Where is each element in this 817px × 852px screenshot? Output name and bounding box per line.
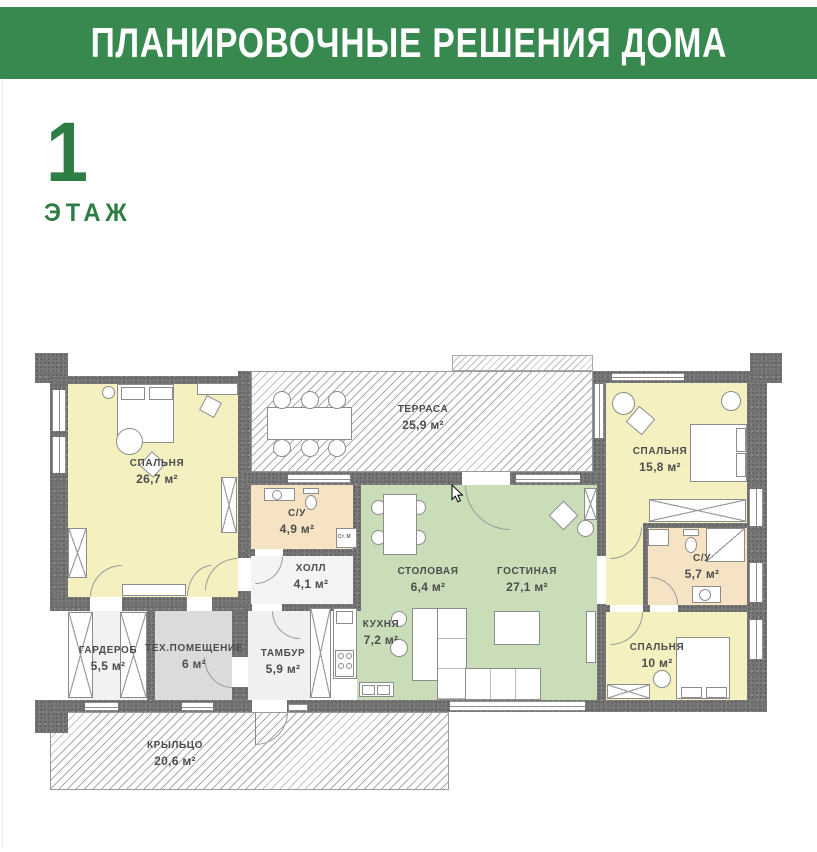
radiator-icon — [584, 488, 597, 520]
sofa-icon — [437, 608, 467, 700]
wall-bedroom1-bottom — [50, 597, 251, 611]
kitchen-island-icon — [412, 608, 438, 681]
closet-icon — [607, 684, 650, 699]
door-gap — [650, 605, 678, 612]
stool-icon — [653, 670, 671, 688]
washing-machine-icon — [648, 529, 669, 546]
sink-bowl-icon — [272, 490, 282, 500]
pillow-icon — [121, 387, 145, 400]
window — [516, 474, 580, 483]
sink-bowl-icon — [362, 685, 375, 695]
door-gap — [252, 604, 282, 611]
door-gap — [597, 556, 606, 604]
room-label-hall: ХОЛЛ 4,1 м² — [294, 563, 329, 591]
chair-icon — [301, 391, 319, 409]
burner-icon — [346, 653, 352, 659]
room-label-wardrobe: ГАРДЕРОБ 5,5 м² — [79, 645, 137, 673]
page-title: ПЛАНИРОВОЧНЫЕ РЕШЕНИЯ ДОМА — [90, 19, 727, 67]
closet-icon — [649, 499, 746, 522]
radiator-icon — [68, 528, 87, 578]
wall-right — [747, 383, 767, 712]
floor-plan-page: ПЛАНИРОВОЧНЫЕ РЕШЕНИЯ ДОМА 1 ЭТАЖ — [0, 0, 817, 852]
nightstand-icon — [102, 386, 115, 399]
burner-icon — [338, 653, 344, 659]
toilet-icon — [685, 537, 697, 553]
room-label-living: ГОСТИНАЯ 27,1 м² — [497, 566, 557, 594]
window — [182, 702, 213, 711]
threshold-icon — [288, 704, 308, 711]
room-label-porch: КРЫЛЬЦО 20,6 м² — [147, 740, 203, 768]
door-gap — [90, 597, 122, 611]
wall-pillar-top-right — [750, 353, 782, 383]
window — [749, 620, 763, 659]
chair-icon — [328, 439, 346, 457]
room-label-dining: СТОЛОВАЯ 6,4 м² — [397, 566, 458, 594]
chair-icon — [273, 439, 291, 457]
door-gap — [238, 558, 251, 591]
burner-icon — [338, 663, 344, 669]
tv-stand-icon — [586, 611, 596, 663]
room-label-kitchen: КУХНЯ 7,2 м² — [363, 619, 400, 647]
window — [749, 563, 763, 602]
door-gap — [187, 597, 212, 611]
pillow-icon — [736, 428, 746, 452]
window — [594, 384, 604, 438]
room-label-tambour: ТАМБУР 5,9 м² — [261, 648, 305, 676]
door-gap — [462, 472, 510, 485]
floor-number: 1 — [46, 118, 88, 187]
window — [450, 701, 585, 711]
dining-table-icon — [383, 494, 417, 555]
room-label-bedroom-2: СПАЛЬНЯ 15,8 м² — [633, 446, 688, 474]
page-edge-line — [2, 7, 3, 847]
chair-icon — [301, 439, 319, 457]
room-porch — [50, 712, 449, 790]
room-label-terrace: ТЕРРАСА 25,9 м² — [398, 404, 449, 432]
room-label-tech: ТЕХ.ПОМЕЩЕНИЕ 6 м² — [145, 643, 243, 671]
radiator-icon — [221, 477, 237, 533]
dresser-icon — [122, 584, 186, 596]
window — [85, 702, 118, 711]
pillow-icon — [706, 687, 727, 698]
closet-icon — [310, 608, 331, 698]
burner-icon — [346, 663, 352, 669]
sofa-icon — [465, 668, 541, 700]
wall-bottom — [50, 700, 767, 712]
chair-icon — [612, 392, 635, 415]
mouse-cursor-icon — [451, 484, 465, 505]
room-label-bath-1: С/У 4,9 м² — [280, 508, 315, 536]
table-icon — [116, 428, 143, 455]
door-gap — [255, 549, 283, 556]
header-banner: ПЛАНИРОВОЧНЫЕ РЕШЕНИЯ ДОМА — [0, 7, 817, 79]
door-gap — [610, 605, 643, 612]
floor-label: ЭТАЖ — [44, 199, 132, 228]
sink-bowl-icon — [377, 685, 390, 695]
room-label-bedroom-1: СПАЛЬНЯ 26,7 м² — [130, 458, 185, 486]
chair-icon — [721, 391, 741, 411]
pillow-icon — [681, 687, 702, 698]
window — [749, 489, 763, 526]
window — [52, 437, 66, 473]
dining-table-icon — [267, 407, 352, 440]
pillow-icon — [149, 387, 173, 400]
terrace-step — [452, 355, 593, 371]
kitchen-sink-icon — [336, 611, 353, 624]
door-leaf — [255, 712, 256, 745]
room-label-bath-2: С/У 5,7 м² — [685, 553, 720, 581]
pillow-icon — [736, 453, 746, 477]
chair-icon — [577, 520, 594, 537]
door-gap — [252, 700, 287, 712]
toilet-icon — [303, 488, 319, 494]
desk-icon — [197, 383, 238, 395]
window — [52, 390, 66, 431]
sink-bowl-icon — [699, 589, 711, 601]
room-label-bedroom-3: СПАЛЬНЯ 10 м² — [630, 642, 685, 670]
window — [612, 373, 684, 381]
window — [288, 474, 350, 483]
toilet-icon — [683, 529, 699, 536]
chair-icon — [273, 391, 291, 409]
coffee-table-icon — [494, 611, 540, 645]
chair-icon — [328, 391, 346, 409]
washing-machine-label: Ст. М — [338, 534, 351, 540]
wall-greatroom-left — [353, 485, 361, 611]
